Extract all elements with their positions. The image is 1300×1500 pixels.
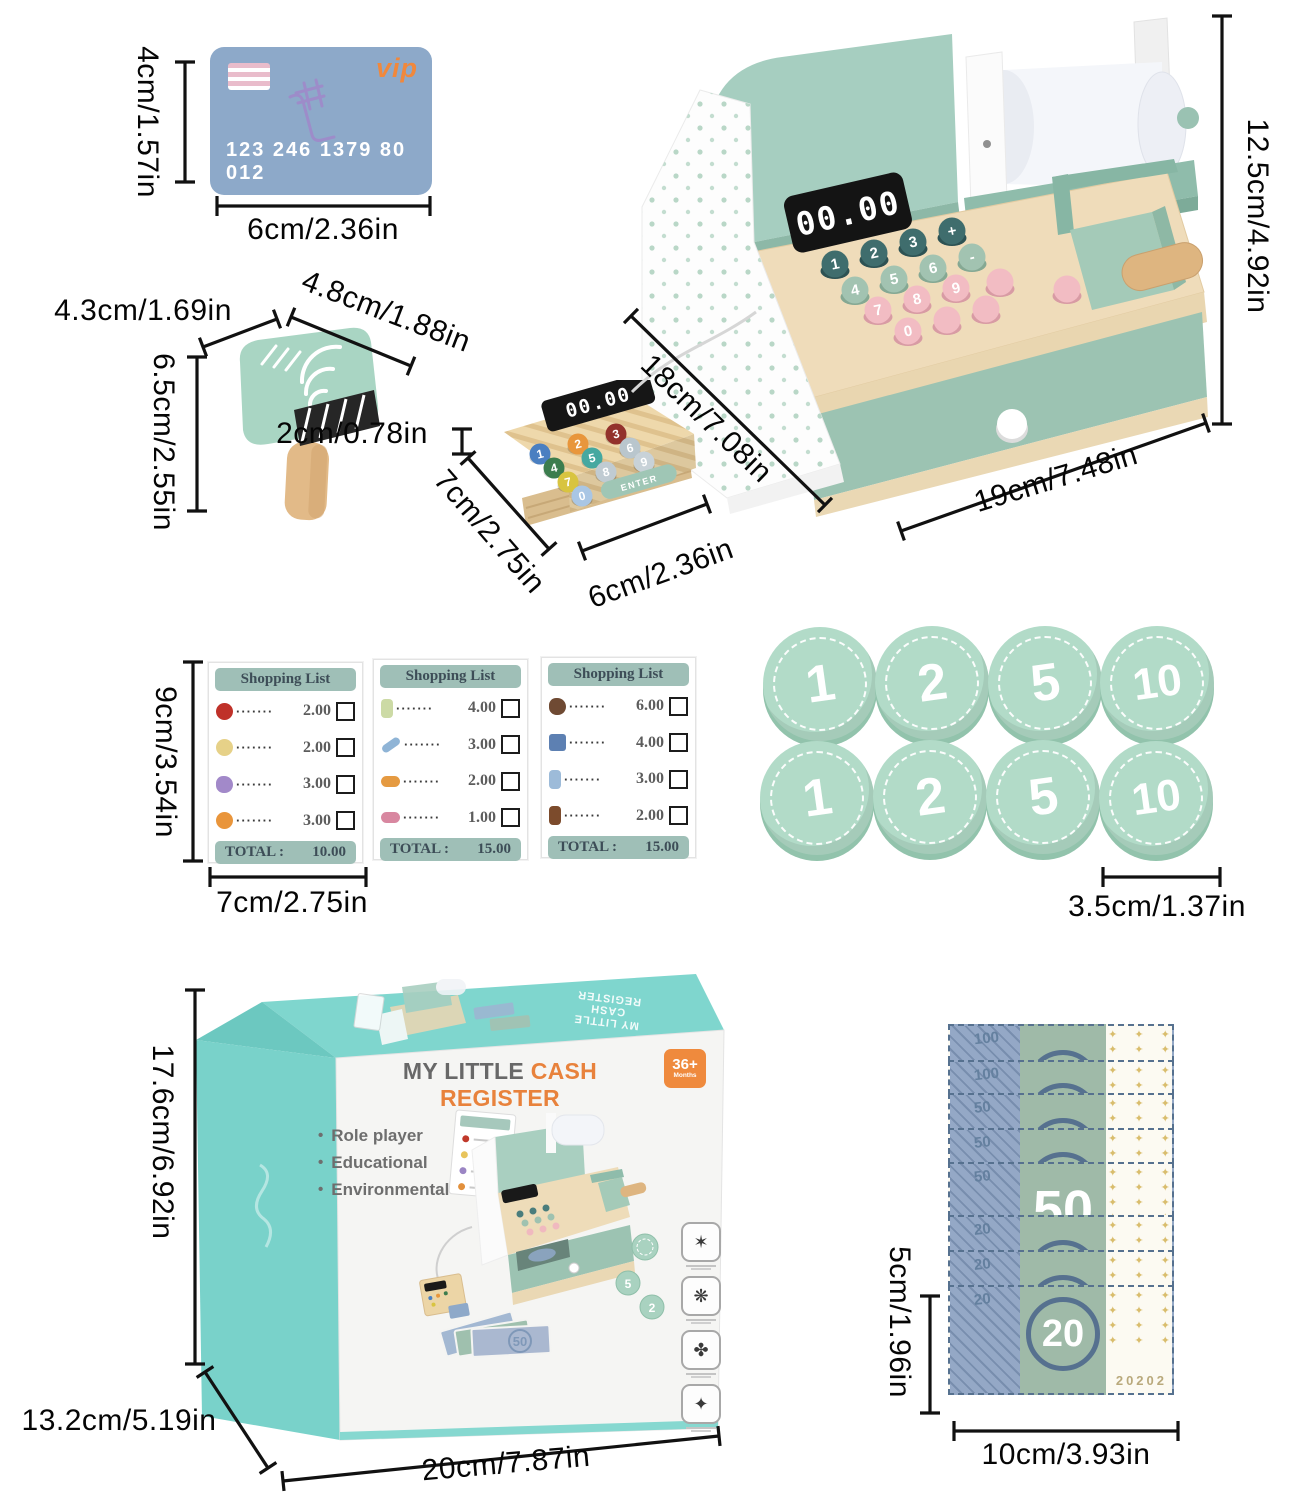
shopping-list-title: Shopping List <box>548 663 689 686</box>
coin-2: 2 <box>873 740 987 854</box>
brain-icon: ❋ <box>681 1276 721 1316</box>
product-box-photo: 50 5 2 <box>190 965 730 1455</box>
dotted-leader: ······· <box>569 735 633 750</box>
item-price: 4.00 <box>468 699 496 717</box>
shopping-list-card: Shopping List·······4.00·······3.00·····… <box>373 659 528 860</box>
svg-text:50: 50 <box>513 1334 527 1349</box>
dotted-leader: ······· <box>564 808 633 823</box>
shopping-list-title: Shopping List <box>380 665 521 688</box>
list-item: ·······4.00 <box>381 692 520 724</box>
feature-list: •Role player•Educational•Environmental <box>318 1122 449 1203</box>
list-item: ·······3.00 <box>549 763 688 795</box>
checkbox-icon <box>669 697 688 716</box>
coin-5: 5 <box>986 740 1100 854</box>
milk-icon <box>549 770 561 789</box>
list-item: ·······3.00 <box>216 805 355 837</box>
coin-2: 2 <box>875 626 989 740</box>
banknote-20: 20 <box>948 1250 1174 1287</box>
soap-bar-icon <box>381 776 400 787</box>
vip-card: vip 123 246 1379 80 012 <box>210 47 432 195</box>
dim-card-width: 6cm/2.36in <box>247 213 399 247</box>
register-key-blank <box>1054 276 1081 303</box>
item-price: 4.00 <box>636 734 664 752</box>
shopping-list-items: ·······2.00·······2.00·······3.00·······… <box>215 691 356 841</box>
register-key-blank <box>973 296 1000 323</box>
feature-label: Environmental <box>331 1176 449 1203</box>
vip-label: vip <box>376 53 418 84</box>
box-title-prefix: MY LITTLE <box>403 1058 524 1084</box>
dotted-leader: ······· <box>403 810 465 825</box>
lemon-icon <box>216 739 233 756</box>
item-price: 3.00 <box>303 775 331 793</box>
banknote-20: 20 <box>948 1215 1174 1252</box>
box-title: MY LITTLE CASH REGISTER <box>340 1058 660 1112</box>
feature-label: Role player <box>331 1122 423 1149</box>
item-price: 6.00 <box>636 697 664 715</box>
coin-5: 5 <box>988 626 1102 740</box>
age-badge: 36+ Months <box>664 1049 706 1088</box>
dim-coin-diameter: 3.5cm/1.37in <box>1068 890 1246 924</box>
dotted-leader: ······· <box>236 813 300 828</box>
apple-icon <box>216 703 233 720</box>
card-chip-icon <box>228 63 270 90</box>
svg-text:2: 2 <box>649 1301 656 1315</box>
bill-big-value: 20 <box>1026 1297 1100 1371</box>
list-item: ·······3.00 <box>216 768 355 800</box>
dim-scanner-handle: 2cm/0.78in <box>276 417 428 451</box>
shopping-list-total: TOTAL :15.00 <box>548 836 689 859</box>
dotted-leader: ······· <box>569 699 633 714</box>
coin-value: 10 <box>1128 770 1183 826</box>
bill-denomination: 20 <box>973 1220 991 1239</box>
lightbulb-icon: ✶ <box>681 1222 721 1262</box>
bill-denomination: 100 <box>973 1029 1000 1049</box>
feature-label: Educational <box>331 1149 427 1176</box>
checkbox-icon <box>336 702 355 721</box>
item-price: 3.00 <box>636 770 664 788</box>
item-price: 3.00 <box>468 736 496 754</box>
bill-denomination: 50 <box>973 1098 991 1117</box>
checkbox-icon <box>501 808 520 827</box>
roll-axle <box>1177 107 1199 129</box>
banknote-100: 100 <box>948 1060 1174 1095</box>
bullet-icon: • <box>318 1149 323 1176</box>
toothpaste-icon <box>381 736 402 754</box>
dim-list-height: 9cm/3.54in <box>148 686 182 838</box>
banknote-20: 202020202 <box>948 1285 1174 1395</box>
bill-denomination: 50 <box>973 1133 991 1152</box>
dim-money-height: 5cm/1.96in <box>882 1246 916 1398</box>
soap-bottle-icon <box>381 699 393 718</box>
coin-10: 10 <box>1100 626 1214 740</box>
banknote-100: 100 <box>948 1024 1174 1062</box>
checkbox-icon <box>336 811 355 830</box>
bullet-icon: • <box>318 1122 323 1149</box>
bill-denomination: 20 <box>973 1290 991 1309</box>
bill-denomination: 50 <box>973 1167 991 1186</box>
total-value: 15.00 <box>645 839 679 856</box>
dotted-leader: ······· <box>236 740 300 755</box>
total-value: 15.00 <box>477 841 511 858</box>
shopping-list-title: Shopping List <box>215 668 356 691</box>
banknote-50: 50 <box>948 1093 1174 1130</box>
coin-10: 10 <box>1099 741 1213 855</box>
feature-item: •Environmental <box>318 1176 449 1203</box>
dim-scanner-depth: 4.3cm/1.69in <box>54 294 232 328</box>
bill-big-value: 50 <box>1020 1179 1106 1217</box>
dotted-leader: ······· <box>404 737 465 752</box>
shopping-list-card: Shopping List·······2.00·······2.00·····… <box>208 662 363 863</box>
feature-item: •Educational <box>318 1149 449 1176</box>
dim-money-width: 10cm/3.93in <box>982 1438 1151 1472</box>
shopping-list-total: TOTAL :15.00 <box>380 838 521 861</box>
coffee-icon <box>549 806 561 825</box>
coin-1: 1 <box>763 627 877 741</box>
shopping-list-items: ·······4.00·······3.00·······2.00·······… <box>380 688 521 838</box>
sponge-icon <box>381 812 400 823</box>
list-item: ·······3.00 <box>381 729 520 761</box>
item-price: 1.00 <box>468 809 496 827</box>
list-item: ·······2.00 <box>216 695 355 727</box>
coin-1: 1 <box>760 741 874 855</box>
list-item: ·······2.00 <box>216 732 355 764</box>
shopping-list-card: Shopping List·······6.00·······4.00·····… <box>541 657 696 858</box>
shopping-list-items: ·······6.00·······4.00·······3.00·······… <box>548 686 689 836</box>
dim-box-height: 17.6cm/6.92in <box>145 1045 179 1240</box>
list-item: ·······2.00 <box>549 800 688 832</box>
checkbox-icon <box>669 806 688 825</box>
product-dimension-sheet: vip 123 246 1379 80 012 <box>0 0 1300 1500</box>
list-item: ·······1.00 <box>381 802 520 834</box>
list-item: ·······6.00 <box>549 690 688 722</box>
coin-value: 10 <box>1129 655 1184 711</box>
total-label: TOTAL : <box>225 844 284 861</box>
dotted-leader: ······· <box>403 774 465 789</box>
register-key-blank <box>987 269 1014 296</box>
total-label: TOTAL : <box>390 841 449 858</box>
dotted-leader: ······· <box>396 701 465 716</box>
drawer-knob <box>997 409 1027 439</box>
item-price: 3.00 <box>303 812 331 830</box>
item-price: 2.00 <box>303 739 331 757</box>
dim-scanner-height: 6.5cm/2.55in <box>146 353 180 531</box>
orange-icon <box>216 812 233 829</box>
dotted-leader: ······· <box>236 704 300 719</box>
dim-list-width: 7cm/2.75in <box>216 886 368 920</box>
play-money-stack: 100100505050502020202020202 <box>948 1026 1174 1395</box>
banknote-50: 50 <box>948 1128 1174 1164</box>
checkbox-icon <box>669 770 688 789</box>
dim-card-height: 4cm/1.57in <box>130 46 164 198</box>
register-key-blank <box>934 307 961 334</box>
snack-bag-icon <box>549 734 566 751</box>
grapes-icon <box>216 776 233 793</box>
list-item: ·······4.00 <box>549 727 688 759</box>
dotted-leader: ······· <box>236 777 300 792</box>
feature-item: •Role player <box>318 1122 449 1149</box>
total-label: TOTAL : <box>558 839 617 856</box>
checkbox-icon <box>501 735 520 754</box>
item-price: 2.00 <box>468 772 496 790</box>
bill-denomination: 20 <box>973 1255 991 1274</box>
svg-text:5: 5 <box>625 1277 632 1291</box>
card-number: 123 246 1379 80 012 <box>226 139 432 185</box>
bullet-icon: • <box>318 1176 323 1203</box>
checkbox-icon <box>669 733 688 752</box>
dotted-leader: ······· <box>564 772 633 787</box>
box-feature-icons: ✶ ❋ ✤ ✦ <box>681 1222 721 1438</box>
item-price: 2.00 <box>303 702 331 720</box>
coordination-icon: ✤ <box>681 1330 721 1370</box>
total-value: 10.00 <box>312 844 346 861</box>
checkbox-icon <box>501 772 520 791</box>
bill-denomination: 100 <box>973 1065 1000 1085</box>
dim-register-height: 12.5cm/4.92in <box>1240 119 1274 314</box>
banknote-50: 5050 <box>948 1162 1174 1217</box>
shopping-list-total: TOTAL :10.00 <box>215 841 356 864</box>
muffin-icon <box>549 698 566 715</box>
checkbox-icon <box>501 699 520 718</box>
item-price: 2.00 <box>636 807 664 825</box>
blocks-icon: ✦ <box>681 1384 721 1424</box>
checkbox-icon <box>336 738 355 757</box>
dim-box-depth: 13.2cm/5.19in <box>22 1404 217 1438</box>
list-item: ·······2.00 <box>381 765 520 797</box>
bill-serial: 20202 <box>1116 1373 1167 1388</box>
checkbox-icon <box>336 775 355 794</box>
